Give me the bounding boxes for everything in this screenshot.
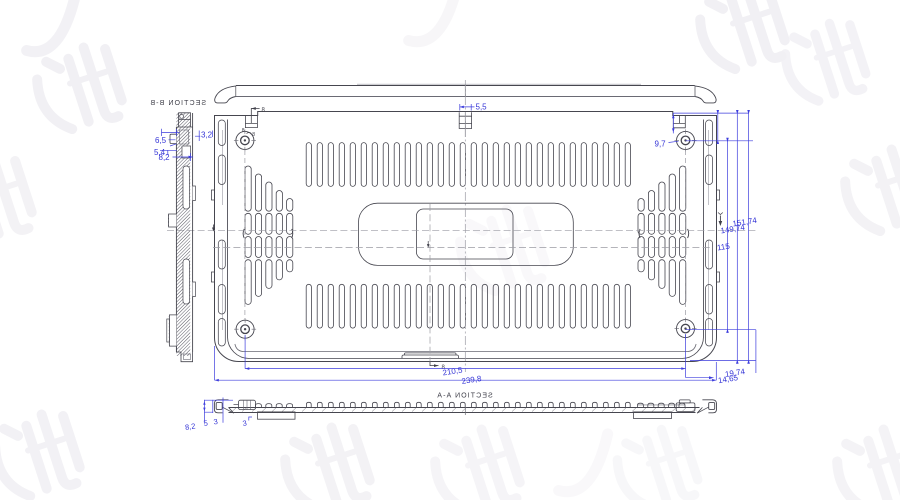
svg-text:3,2: 3,2 [201,130,213,139]
svg-text:8: 8 [252,132,255,138]
svg-text:3: 3 [213,417,219,427]
svg-text:8,2: 8,2 [184,421,196,432]
svg-text:SECTION B-B: SECTION B-B [149,100,206,107]
svg-text:8,2: 8,2 [159,153,171,162]
svg-text:SECTION A-A: SECTION A-A [436,393,492,400]
svg-text:149,74: 149,74 [720,223,746,236]
svg-text:210,5: 210,5 [442,365,464,377]
svg-text:3: 3 [242,418,248,428]
svg-text:14,65: 14,65 [717,373,739,385]
svg-text:6,5: 6,5 [155,136,167,145]
svg-text:8: 8 [262,108,266,114]
svg-text:8: 8 [242,128,245,134]
svg-text:9,7: 9,7 [655,140,667,149]
svg-text:115: 115 [716,242,731,253]
svg-text:5,5: 5,5 [476,103,488,112]
svg-text:5: 5 [203,418,209,428]
svg-text:239,8: 239,8 [461,374,483,386]
